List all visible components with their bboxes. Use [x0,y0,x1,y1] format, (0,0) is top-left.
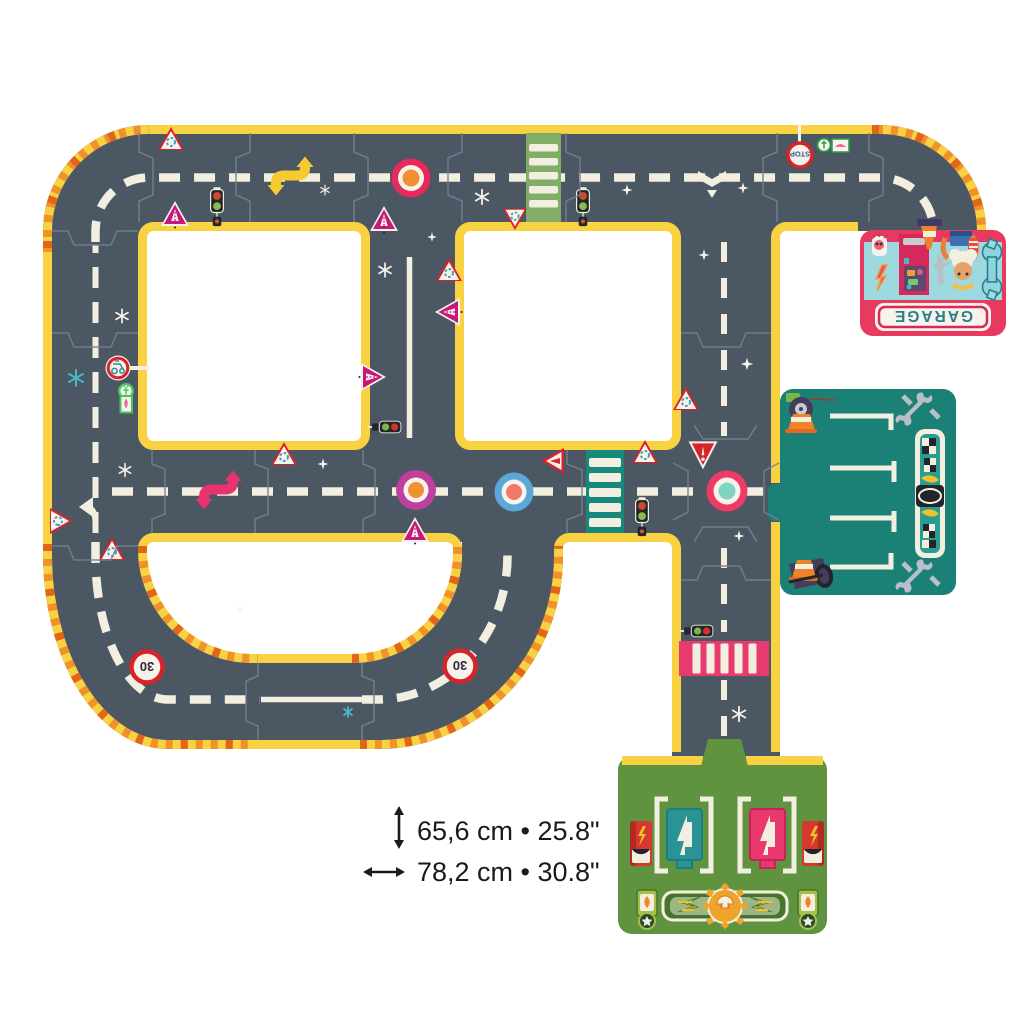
svg-text:78,2 cm • 30.8": 78,2 cm • 30.8" [417,857,600,887]
svg-text:30: 30 [140,659,154,674]
svg-text:30: 30 [453,658,467,673]
svg-text:GARAGE: GARAGE [893,307,973,324]
svg-text:STOP: STOP [790,150,810,159]
svg-text:65,6 cm • 25.8": 65,6 cm • 25.8" [417,816,600,846]
